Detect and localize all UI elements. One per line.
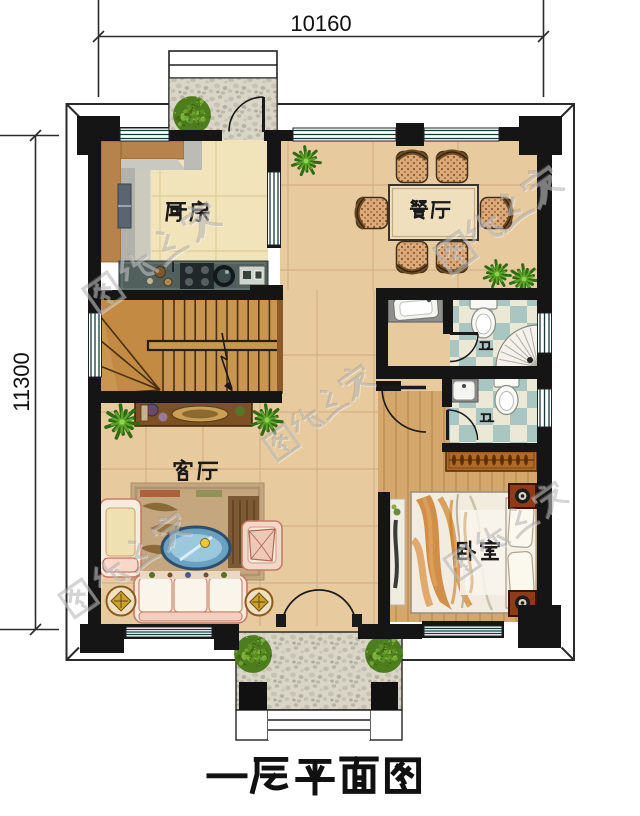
svg-text:11300: 11300 — [9, 352, 34, 412]
svg-text:10160: 10160 — [290, 11, 351, 36]
